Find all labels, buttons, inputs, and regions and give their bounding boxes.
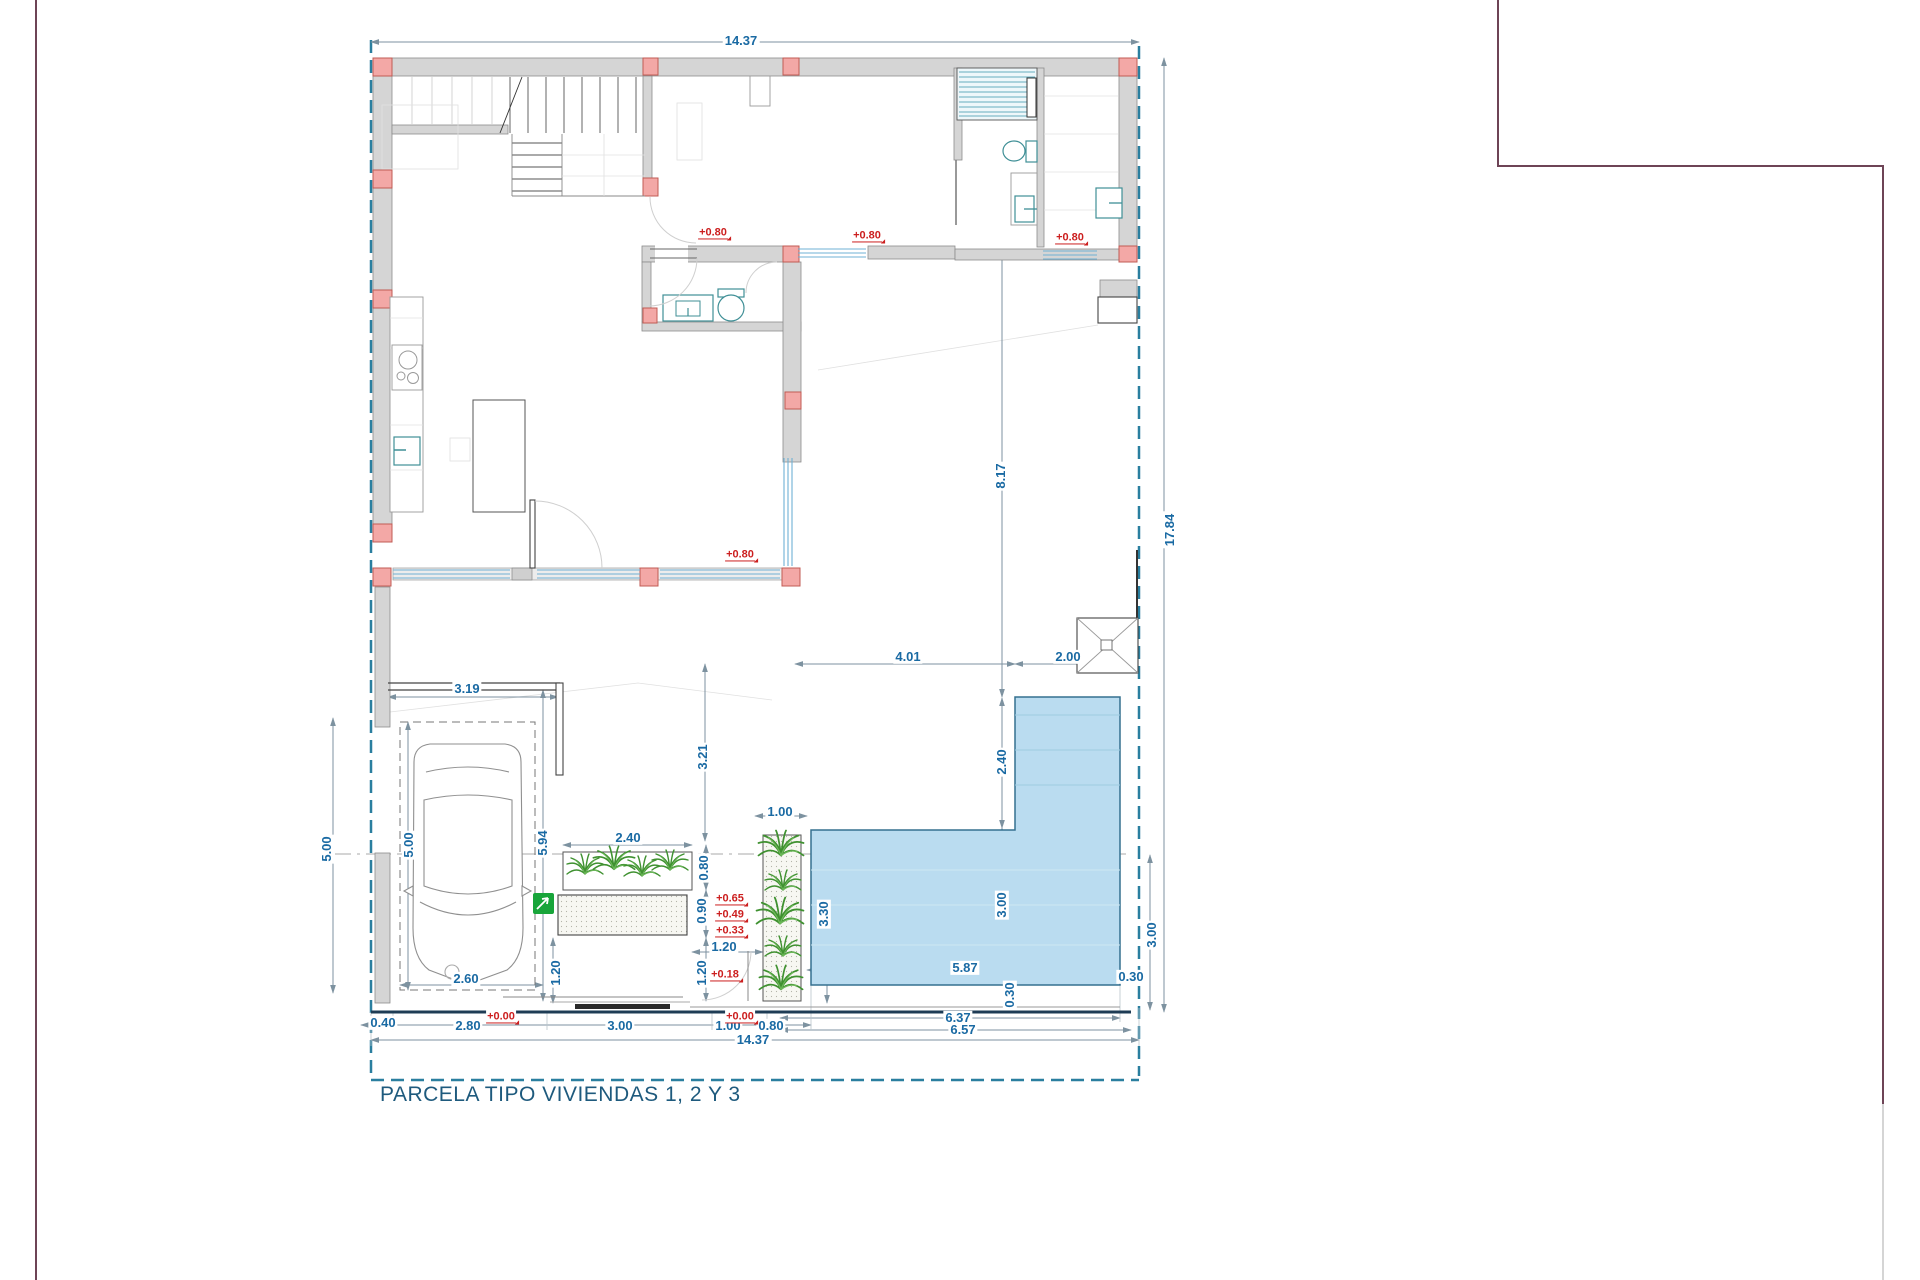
street-edge [371, 997, 1131, 1012]
floor-plan-drawing [0, 0, 1920, 1280]
wc-toilet-icon [718, 289, 744, 321]
roof-projection-lines [390, 325, 1098, 712]
wc-sink-icon [663, 295, 713, 321]
floor-plan-sheet: 14.3717.848.174.012.002.403.193.215.005.… [0, 0, 1920, 1280]
parcel-frame-lines [36, 0, 1883, 1280]
swimming-pool [811, 697, 1120, 985]
exit-sign-icon [533, 893, 554, 914]
car-icon [404, 744, 531, 983]
dressing-shelves [1044, 96, 1122, 218]
skylight-x-icon [1077, 618, 1138, 673]
planters [558, 831, 804, 1002]
cooktop-icon [392, 345, 422, 390]
page-title: PARCELA TIPO VIVIENDAS 1, 2 Y 3 [380, 1083, 741, 1107]
terrace [1077, 618, 1138, 673]
shower-icon [957, 68, 1037, 120]
toilet-icon [1003, 141, 1037, 162]
kitchen-sink-icon [394, 437, 420, 465]
garage-car [400, 722, 535, 990]
gravel-bed [558, 895, 687, 935]
vanity-sink-icon [1011, 173, 1037, 225]
stairs [382, 77, 645, 196]
bathrooms [663, 68, 1122, 321]
entry-step [575, 1004, 670, 1009]
kitchen [390, 297, 525, 512]
